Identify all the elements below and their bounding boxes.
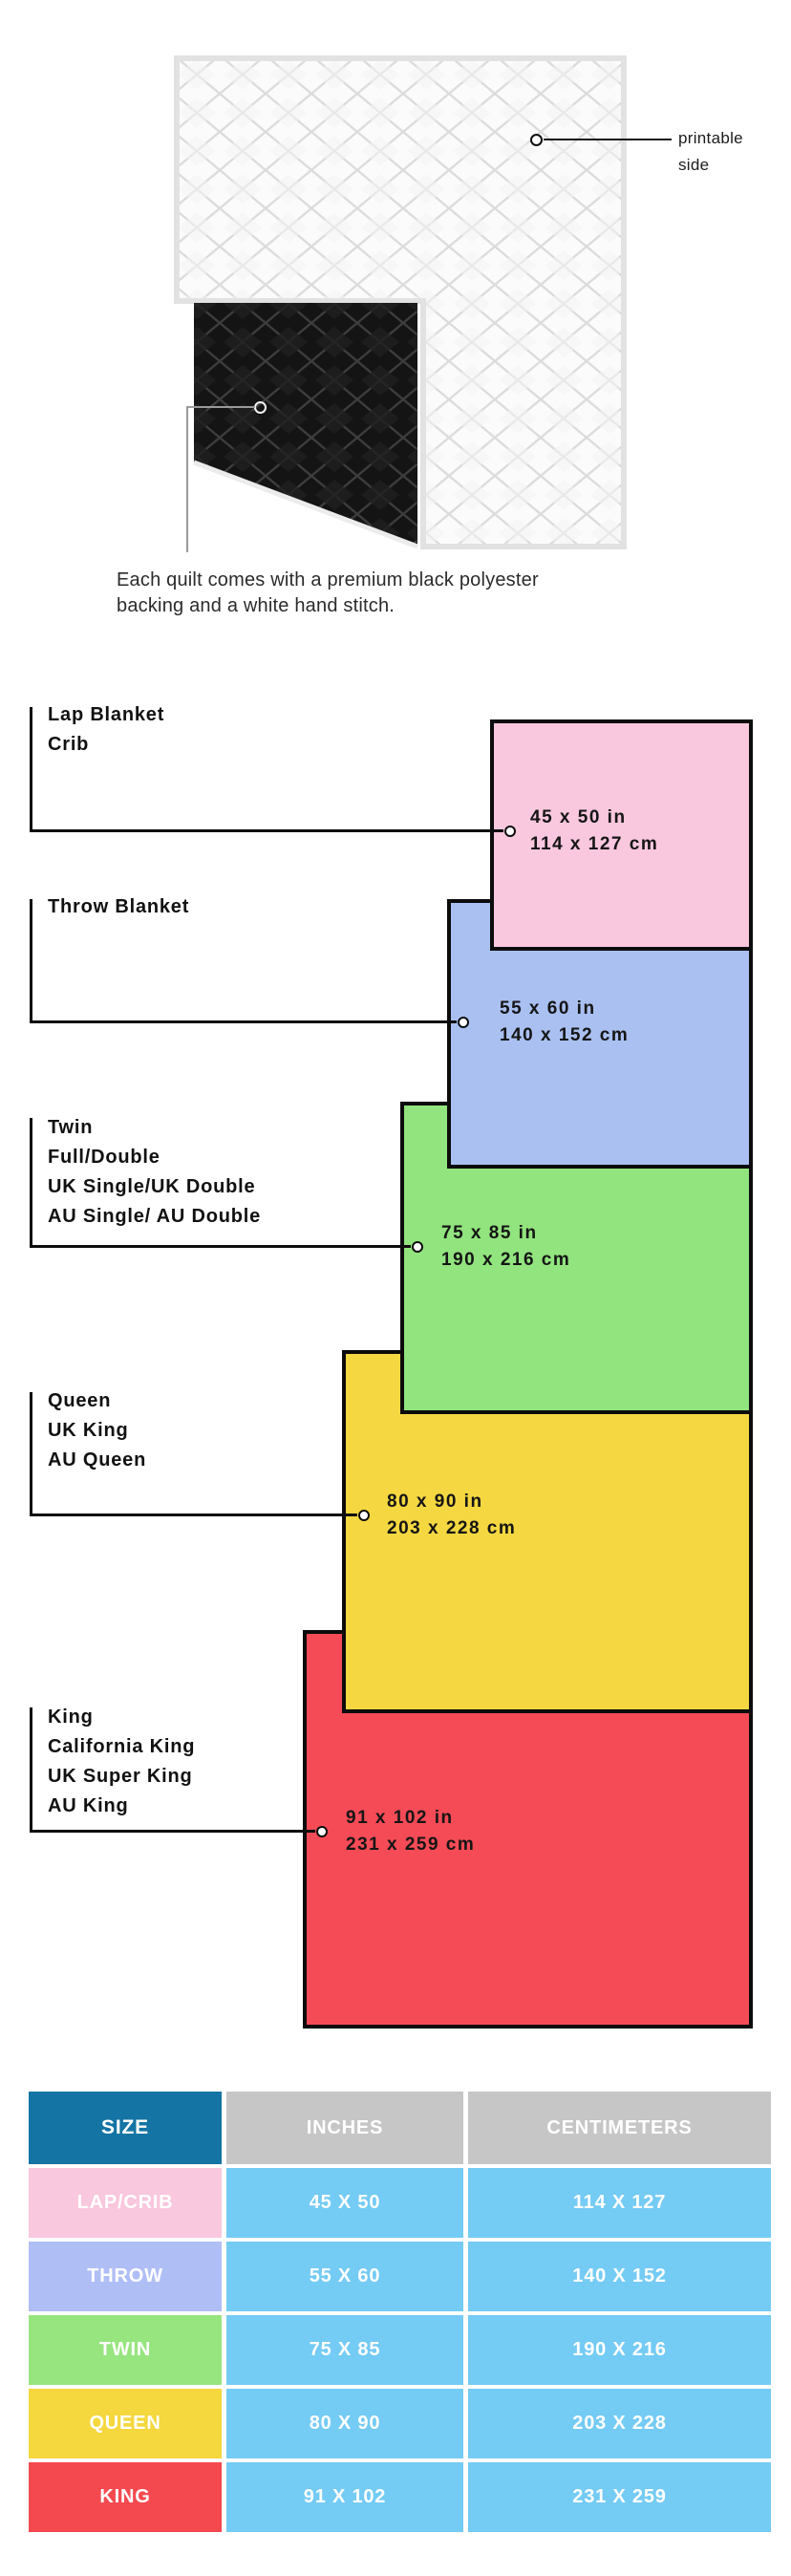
- table-cell-cm: 190 X 216: [468, 2315, 771, 2385]
- table-cell-inches: 75 X 85: [226, 2315, 463, 2385]
- printable-side-label-line2: side: [678, 156, 709, 174]
- connector-twin-v: [30, 1118, 32, 1247]
- marker-queen-icon: [358, 1510, 370, 1521]
- connector-lap-h: [30, 829, 503, 832]
- dimensions-king: 91 x 102 in 231 x 259 cm: [346, 1805, 475, 1858]
- size-label-line: Throw Blanket: [48, 892, 189, 922]
- quilt-photo: [174, 55, 627, 549]
- dimensions-inches: 75 x 85 in: [441, 1220, 570, 1247]
- size-label-line: Crib: [48, 730, 164, 760]
- size-table: SIZE INCHES CENTIMETERS LAP/CRIB 45 X 50…: [29, 2092, 772, 2532]
- quilt-back-black-fold: [194, 303, 417, 547]
- backing-callout-line-h: [186, 406, 255, 408]
- quilt-caption: Each quilt comes with a premium black po…: [117, 568, 728, 619]
- size-label-line: King: [48, 1703, 195, 1732]
- size-label-line: Lap Blanket: [48, 700, 164, 730]
- printable-side-marker-icon: [530, 134, 543, 146]
- dimensions-lap: 45 x 50 in 114 x 127 cm: [530, 805, 658, 858]
- size-label-line: Full/Double: [48, 1143, 261, 1172]
- dimensions-queen: 80 x 90 in 203 x 228 cm: [387, 1489, 516, 1542]
- dimensions-cm: 231 x 259 cm: [346, 1832, 475, 1858]
- size-label-king: King California King UK Super King AU Ki…: [48, 1703, 195, 1821]
- table-header-inches: INCHES: [226, 2092, 463, 2164]
- dimensions-inches: 91 x 102 in: [346, 1805, 475, 1832]
- size-label-lap: Lap Blanket Crib: [48, 700, 164, 760]
- connector-king-v: [30, 1707, 32, 1832]
- table-row-label: LAP/CRIB: [29, 2168, 222, 2238]
- printable-side-label: printable side: [678, 125, 743, 179]
- printable-side-label-line1: printable: [678, 129, 743, 147]
- table-cell-inches: 55 X 60: [226, 2242, 463, 2311]
- connector-queen-h: [30, 1513, 357, 1516]
- printable-side-callout-line: [544, 139, 672, 140]
- size-label-queen: Queen UK King AU Queen: [48, 1386, 146, 1475]
- size-label-line: Twin: [48, 1113, 261, 1143]
- backing-callout-line-v: [186, 406, 188, 552]
- marker-twin-icon: [412, 1241, 423, 1253]
- table-header-centimeters: CENTIMETERS: [468, 2092, 771, 2164]
- table-row-label: THROW: [29, 2242, 222, 2311]
- size-label-twin: Twin Full/Double UK Single/UK Double AU …: [48, 1113, 261, 1232]
- dimensions-cm: 203 x 228 cm: [387, 1515, 516, 1542]
- table-cell-inches: 91 X 102: [226, 2462, 463, 2532]
- size-label-line: Queen: [48, 1386, 146, 1416]
- connector-throw-v: [30, 899, 32, 1022]
- connector-throw-h: [30, 1020, 457, 1023]
- table-row-label: KING: [29, 2462, 222, 2532]
- table-header-size: SIZE: [29, 2092, 222, 2164]
- dimensions-cm: 114 x 127 cm: [530, 831, 658, 858]
- backing-marker-icon: [254, 401, 267, 414]
- size-label-line: UK Super King: [48, 1762, 195, 1792]
- quilt-caption-line1: Each quilt comes with a premium black po…: [117, 569, 539, 590]
- table-cell-cm: 114 X 127: [468, 2168, 771, 2238]
- quilt-caption-line2: backing and a white hand stitch.: [117, 595, 395, 616]
- table-row-label: QUEEN: [29, 2389, 222, 2458]
- dimensions-cm: 140 x 152 cm: [500, 1022, 629, 1049]
- size-guide-page: printable side Each quilt comes with a p…: [0, 0, 791, 2576]
- table-row-label: TWIN: [29, 2315, 222, 2385]
- table-cell-inches: 45 X 50: [226, 2168, 463, 2238]
- size-label-throw: Throw Blanket: [48, 892, 189, 922]
- marker-king-icon: [316, 1826, 328, 1837]
- table-cell-cm: 140 X 152: [468, 2242, 771, 2311]
- connector-lap-v: [30, 707, 32, 831]
- size-label-line: California King: [48, 1732, 195, 1762]
- dimensions-inches: 55 x 60 in: [500, 996, 629, 1022]
- size-label-line: AU Single/ AU Double: [48, 1202, 261, 1232]
- marker-throw-icon: [458, 1017, 469, 1028]
- size-label-line: AU Queen: [48, 1446, 146, 1475]
- size-label-line: UK Single/UK Double: [48, 1172, 261, 1202]
- connector-king-h: [30, 1830, 315, 1833]
- connector-twin-h: [30, 1245, 411, 1248]
- table-cell-cm: 231 X 259: [468, 2462, 771, 2532]
- size-label-line: UK King: [48, 1416, 146, 1446]
- connector-queen-v: [30, 1392, 32, 1515]
- table-cell-inches: 80 X 90: [226, 2389, 463, 2458]
- dimensions-cm: 190 x 216 cm: [441, 1247, 570, 1274]
- marker-lap-icon: [504, 826, 516, 837]
- dimensions-throw: 55 x 60 in 140 x 152 cm: [500, 996, 629, 1049]
- size-label-line: AU King: [48, 1792, 195, 1821]
- dimensions-twin: 75 x 85 in 190 x 216 cm: [441, 1220, 570, 1274]
- dimensions-inches: 80 x 90 in: [387, 1489, 516, 1515]
- dimensions-inches: 45 x 50 in: [530, 805, 658, 831]
- table-cell-cm: 203 X 228: [468, 2389, 771, 2458]
